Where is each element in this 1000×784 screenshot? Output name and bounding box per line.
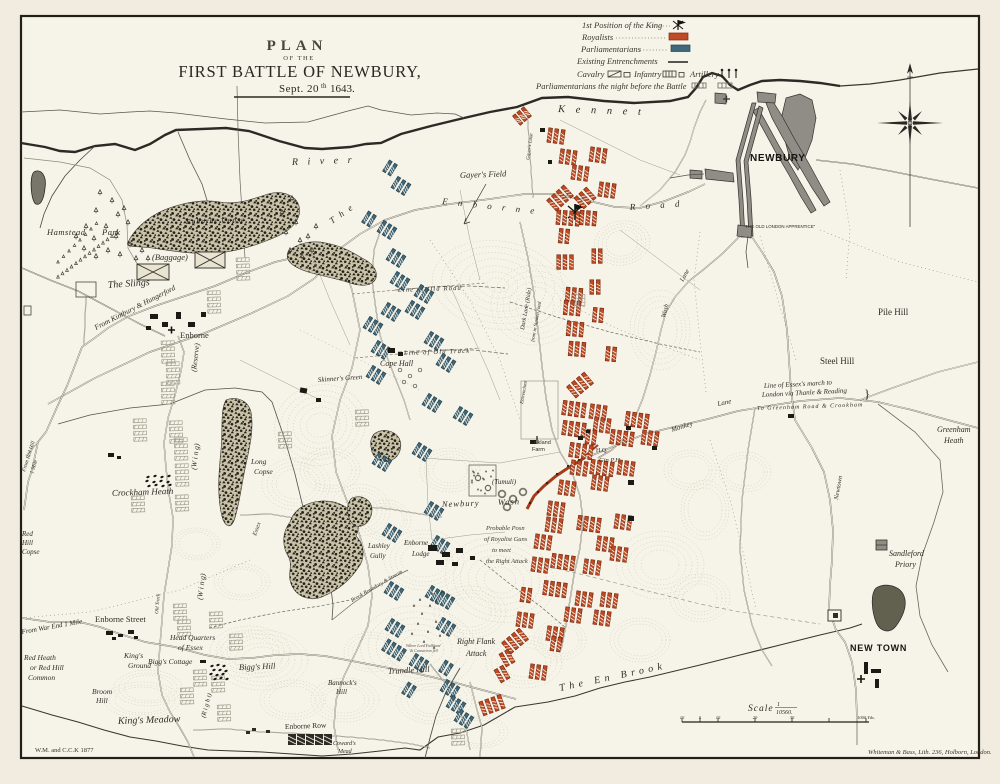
svg-text:Cavalry: Cavalry xyxy=(577,69,605,79)
svg-text:Newbury: Newbury xyxy=(441,498,480,509)
svg-text:Sept. 20: Sept. 20 xyxy=(279,83,319,95)
svg-text:& Carnarvon fell: & Carnarvon fell xyxy=(410,648,439,653)
svg-text:W.M. and C.C.K 1877: W.M. and C.C.K 1877 xyxy=(35,747,94,754)
svg-text:Red: Red xyxy=(21,530,33,538)
svg-text:King's Meadow: King's Meadow xyxy=(117,714,181,727)
svg-text:}: } xyxy=(864,386,870,401)
svg-text:the Right Attack: the Right Attack xyxy=(486,558,528,565)
svg-text:H.Q.: H.Q. xyxy=(596,448,608,454)
svg-text:20: 20 xyxy=(753,715,758,720)
svg-text:Farm: Farm xyxy=(532,447,545,453)
svg-text:Enborne Street: Enborne Street xyxy=(95,614,146,624)
svg-text:1000 Yds.: 1000 Yds. xyxy=(857,715,875,720)
svg-text:Copse: Copse xyxy=(22,548,40,556)
svg-text:Parliamentarians the night bef: Parliamentarians the night before the Ba… xyxy=(535,81,687,91)
svg-text:Wash: Wash xyxy=(498,496,520,507)
svg-text:R i v e r: R i v e r xyxy=(291,155,356,168)
svg-text:Infantry: Infantry xyxy=(633,69,662,79)
svg-text:Cope Hall: Cope Hall xyxy=(380,359,414,368)
svg-text:Pile Hill: Pile Hill xyxy=(878,307,909,317)
svg-text:"THE OLD LONDON APPRENTICE": "THE OLD LONDON APPRENTICE" xyxy=(744,224,816,229)
svg-text:Attack: Attack xyxy=(465,649,487,658)
svg-text:Hamstead: Hamstead xyxy=(46,227,86,237)
svg-text:PLAN: PLAN xyxy=(267,38,328,54)
svg-text:Park: Park xyxy=(101,227,121,237)
svg-text:of Royalist Guns: of Royalist Guns xyxy=(484,536,528,543)
svg-text:Red Heath: Red Heath xyxy=(23,653,56,662)
svg-text:10: 10 xyxy=(716,715,721,720)
svg-text:Coward's: Coward's xyxy=(333,741,356,747)
svg-text:Mead: Mead xyxy=(337,749,353,755)
svg-text:Common: Common xyxy=(28,673,55,682)
svg-text:10: 10 xyxy=(680,715,685,720)
svg-text:1643.: 1643. xyxy=(330,83,355,95)
svg-text:Broom: Broom xyxy=(92,687,113,696)
svg-text:(Baggage): (Baggage) xyxy=(152,252,188,262)
svg-text:Falkland: Falkland xyxy=(530,440,551,446)
svg-text:of Essex: of Essex xyxy=(178,643,203,652)
svg-text:or Red Hill: or Red Hill xyxy=(30,663,64,672)
svg-text:NEWBURY: NEWBURY xyxy=(750,153,806,164)
svg-text:(Tumuli): (Tumuli) xyxy=(492,478,517,486)
svg-text:Enborne Row: Enborne Row xyxy=(285,721,327,731)
svg-text:Hill: Hill xyxy=(95,696,108,705)
svg-text:Royalists: Royalists xyxy=(581,32,614,42)
svg-text:Heath: Heath xyxy=(943,436,964,445)
svg-text:Gully: Gully xyxy=(370,552,386,560)
svg-text:Scale: Scale xyxy=(748,704,774,714)
svg-text:King's: King's xyxy=(123,651,143,660)
svg-text:Probable Posn: Probable Posn xyxy=(485,525,525,532)
svg-text:Lashley: Lashley xyxy=(367,542,391,550)
svg-text:Long: Long xyxy=(250,457,267,466)
svg-text:Right Flank: Right Flank xyxy=(456,637,495,646)
svg-text:Sandleford: Sandleford xyxy=(889,549,925,558)
svg-text:NEW TOWN: NEW TOWN xyxy=(850,643,907,653)
svg-text:Whiteman & Bass, Lith. 236, Ho: Whiteman & Bass, Lith. 236, Holborn, Lon… xyxy=(868,749,992,756)
svg-text:Hill: Hill xyxy=(21,539,33,547)
svg-text:Enborne: Enborne xyxy=(403,539,428,547)
svg-text:Gayer's Field: Gayer's Field xyxy=(460,168,508,180)
svg-text:to meet: to meet xyxy=(492,547,511,554)
svg-text:30: 30 xyxy=(790,715,795,720)
svg-text:Bigg's Cottage: Bigg's Cottage xyxy=(148,657,193,666)
svg-text:1st Position of the King: 1st Position of the King xyxy=(582,20,662,30)
svg-text:Existing Entrenchments: Existing Entrenchments xyxy=(576,56,658,66)
svg-text:1: 1 xyxy=(777,702,780,708)
svg-text:FIRST BATTLE OF NEWBURY,: FIRST BATTLE OF NEWBURY, xyxy=(178,62,421,81)
svg-text:OF THE: OF THE xyxy=(283,55,314,62)
svg-text:Enborne: Enborne xyxy=(180,330,209,340)
svg-text:Parliamentarians: Parliamentarians xyxy=(580,44,642,54)
svg-text:Artillery: Artillery xyxy=(689,69,719,79)
svg-text:Bigg's Hill: Bigg's Hill xyxy=(239,661,276,672)
svg-text:Head Quarters: Head Quarters xyxy=(169,633,215,642)
svg-text:Gin P.H.: Gin P.H. xyxy=(599,457,622,464)
svg-text:Copse: Copse xyxy=(254,467,273,476)
svg-text:Bannock's: Bannock's xyxy=(328,679,357,687)
svg-text:Lodge: Lodge xyxy=(411,550,430,558)
svg-text:th: th xyxy=(321,82,327,90)
svg-text:Steel Hill: Steel Hill xyxy=(820,356,855,366)
svg-text:Priory: Priory xyxy=(894,560,916,569)
svg-text:Hill: Hill xyxy=(335,688,347,696)
svg-text:Greenham: Greenham xyxy=(937,425,971,434)
